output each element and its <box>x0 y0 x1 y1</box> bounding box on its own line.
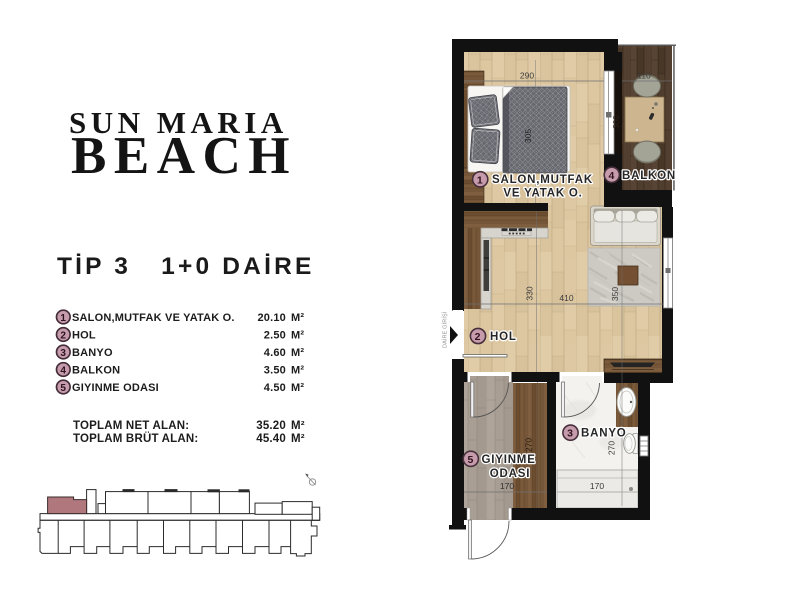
svg-text:170: 170 <box>590 481 604 491</box>
svg-text:3: 3 <box>567 428 574 440</box>
svg-text:BANYO: BANYO <box>72 347 113 359</box>
svg-text:M²: M² <box>291 347 304 359</box>
svg-text:M²: M² <box>291 312 304 324</box>
svg-text:305: 305 <box>523 129 533 143</box>
svg-text:M²: M² <box>291 420 305 432</box>
svg-text:HOL: HOL <box>72 330 96 342</box>
svg-text:HOL: HOL <box>490 331 517 343</box>
svg-text:5: 5 <box>60 383 66 394</box>
svg-text:4: 4 <box>60 365 66 376</box>
svg-text:110: 110 <box>637 71 651 81</box>
svg-text:BALKON: BALKON <box>622 170 676 182</box>
svg-text:4.60: 4.60 <box>264 347 286 359</box>
svg-text:TOPLAM BRÜT ALAN:: TOPLAM BRÜT ALAN: <box>73 432 198 445</box>
svg-text:4: 4 <box>608 170 615 182</box>
svg-text:ODASI: ODASI <box>490 468 530 480</box>
svg-text:1: 1 <box>477 174 484 186</box>
svg-text:20.10: 20.10 <box>257 312 286 324</box>
svg-text:5: 5 <box>467 454 474 466</box>
svg-text:4.50: 4.50 <box>264 382 286 394</box>
svg-text:45.40: 45.40 <box>256 433 286 445</box>
svg-text:VE YATAK O.: VE YATAK O. <box>503 188 582 200</box>
svg-text:300: 300 <box>612 115 621 129</box>
svg-text:410: 410 <box>559 293 573 303</box>
svg-text:290: 290 <box>520 71 534 81</box>
svg-text:GIYINME ODASI: GIYINME ODASI <box>72 382 159 394</box>
svg-text:BALKON: BALKON <box>72 365 120 377</box>
svg-text:350: 350 <box>610 287 620 301</box>
svg-text:330: 330 <box>525 286 535 300</box>
svg-text:M²: M² <box>291 433 305 445</box>
svg-text:TOPLAM NET ALAN:: TOPLAM NET ALAN: <box>73 420 189 432</box>
svg-text:270: 270 <box>607 441 617 455</box>
svg-text:M²: M² <box>291 382 304 394</box>
svg-text:3.50: 3.50 <box>264 365 286 377</box>
svg-text:2: 2 <box>475 331 482 343</box>
svg-text:35.20: 35.20 <box>256 420 286 432</box>
svg-text:SALON,MUTFAK VE YATAK O.: SALON,MUTFAK VE YATAK O. <box>72 312 235 324</box>
svg-text:2.50: 2.50 <box>264 330 286 342</box>
svg-text:2: 2 <box>60 330 66 341</box>
svg-text:270: 270 <box>524 438 534 452</box>
svg-text:BANYO: BANYO <box>581 428 627 440</box>
svg-text:170: 170 <box>500 481 514 491</box>
svg-text:SALON,MUTFAK: SALON,MUTFAK <box>492 174 593 186</box>
svg-text:M²: M² <box>291 365 304 377</box>
svg-text:GIYINME: GIYINME <box>482 454 536 466</box>
svg-text:3: 3 <box>60 348 66 359</box>
svg-text:M²: M² <box>291 330 304 342</box>
svg-text:DAİRE GİRİŞİ: DAİRE GİRİŞİ <box>442 311 449 348</box>
svg-text:1: 1 <box>60 313 66 324</box>
